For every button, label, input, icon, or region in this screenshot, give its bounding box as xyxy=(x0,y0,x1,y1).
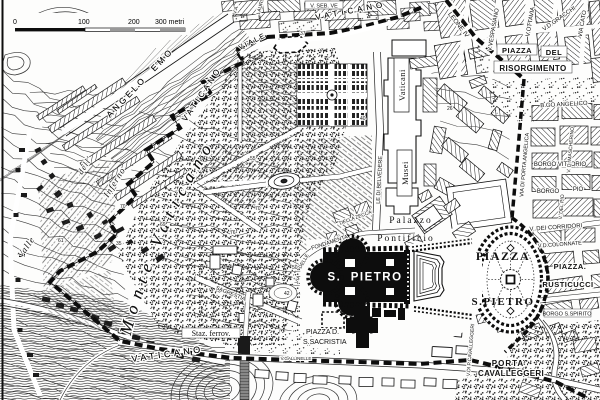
svg-text:26: 26 xyxy=(447,106,453,112)
svg-text:PIAZZA.: PIAZZA. xyxy=(554,262,587,271)
svg-text:35: 35 xyxy=(116,241,122,247)
svg-text:200: 200 xyxy=(128,19,140,26)
svg-text:300 metri: 300 metri xyxy=(155,19,185,26)
svg-text:Palazzo: Palazzo xyxy=(389,216,433,226)
svg-text:BORGO VITTORIO: BORGO VITTORIO xyxy=(534,162,587,168)
svg-text:61: 61 xyxy=(58,238,64,244)
svg-text:Vaticani: Vaticani xyxy=(397,69,407,101)
svg-text:Pontificio: Pontificio xyxy=(377,233,434,244)
svg-text:V. SEB. VE: V. SEB. VE xyxy=(310,4,338,10)
svg-text:S. PIETRO: S. PIETRO xyxy=(327,272,402,284)
svg-text:S.PIETRO: S.PIETRO xyxy=(471,296,534,308)
svg-text:42: 42 xyxy=(284,291,290,297)
svg-text:PIO: PIO xyxy=(573,187,584,193)
svg-text:50: 50 xyxy=(292,265,298,271)
svg-text:PIAZZA: PIAZZA xyxy=(476,249,530,263)
svg-text:PORTA: PORTA xyxy=(492,359,524,368)
svg-text:RUSTICUCCI: RUSTICUCCI xyxy=(542,280,593,289)
svg-text:Musei: Musei xyxy=(400,161,410,185)
svg-text:DEL: DEL xyxy=(546,48,563,57)
svg-text:70: 70 xyxy=(255,206,261,212)
svg-text:Staz. ferrov.: Staz. ferrov. xyxy=(192,329,231,338)
svg-text:V.GALLINELLE: V.GALLINELLE xyxy=(281,356,312,361)
svg-text:PIAZZA: PIAZZA xyxy=(502,46,532,55)
svg-text:69: 69 xyxy=(160,222,166,228)
svg-text:55: 55 xyxy=(250,156,256,162)
svg-text:S.SACRISTIA: S.SACRISTIA xyxy=(303,339,347,346)
svg-text:37: 37 xyxy=(300,31,306,37)
svg-text:76: 76 xyxy=(230,230,236,236)
svg-text:PIAZZA D.: PIAZZA D. xyxy=(306,329,339,336)
svg-text:40: 40 xyxy=(360,116,366,122)
svg-text:100: 100 xyxy=(78,19,90,26)
svg-text:RISORGIMENTO: RISORGIMENTO xyxy=(499,64,566,73)
svg-text:70: 70 xyxy=(120,204,126,210)
svg-text:CAVALLEGGERI: CAVALLEGGERI xyxy=(478,369,544,378)
svg-text:BORGO S.SPIRITO: BORGO S.SPIRITO xyxy=(542,312,592,318)
svg-text:BORGO: BORGO xyxy=(537,189,560,195)
svg-text:0: 0 xyxy=(13,19,17,26)
